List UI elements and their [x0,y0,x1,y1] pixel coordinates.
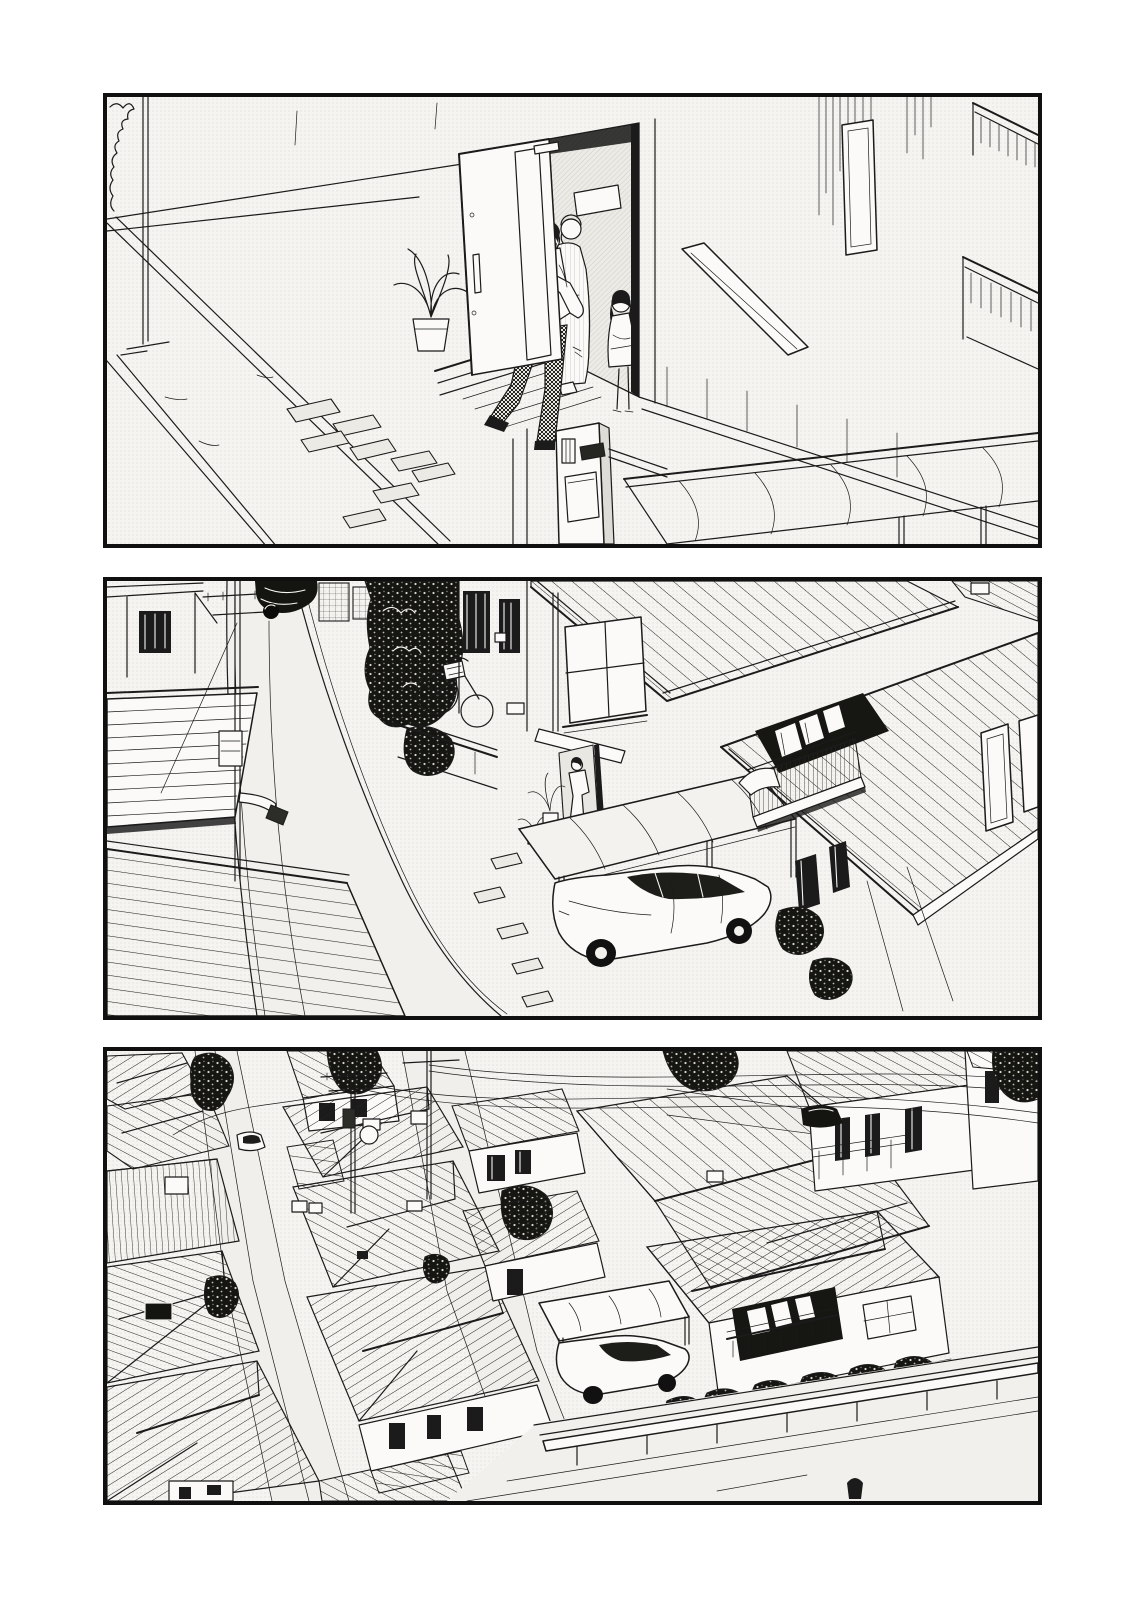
balcony-upper [973,103,1038,167]
corrugated-awning [624,433,1038,544]
path-stones [474,853,553,1007]
right-wall [639,97,1038,539]
tall-window [981,724,1013,831]
stepping-stones [287,399,455,528]
chimney-box [165,1177,188,1194]
manga-page [0,0,1143,1600]
vertical-slat-roof [107,1159,239,1263]
panel-2-art [107,581,1038,1016]
shed-roof [287,1140,344,1189]
round-sign [360,1126,378,1144]
tall-window [842,120,877,255]
sign-plate [411,1111,427,1124]
front-door-open [459,139,562,375]
door-jamb [631,123,639,397]
garden-bush [809,958,852,999]
panel-1-art [107,97,1038,544]
canopy-beam [682,243,808,355]
father-shoe-back [534,441,555,450]
mail-door [565,472,599,522]
forecourt-ground [107,217,455,544]
panel-3 [103,1047,1042,1505]
top-right-roof [952,581,1038,621]
balcony-lower [963,257,1038,369]
plant-pot [413,319,449,351]
top-left-house [107,583,217,677]
potted-plant [394,249,470,351]
garden-bush [776,907,824,954]
bike-basket [443,661,465,680]
bollard [847,1478,863,1499]
small-white-car [237,1132,265,1151]
foliage-scribble [110,104,134,211]
panel-1 [103,93,1042,548]
white-sedan [553,866,771,968]
sedan-front [556,1336,689,1404]
skylight [145,1303,172,1320]
panel-3-art [107,1051,1038,1501]
panel-2 [103,577,1042,1020]
